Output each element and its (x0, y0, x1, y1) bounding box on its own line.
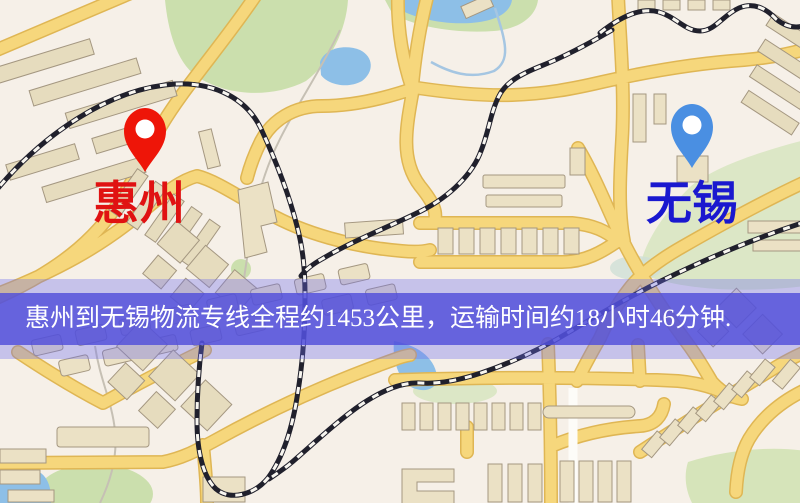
origin-city-label: 惠州 (93, 181, 185, 227)
origin-marker-pin[interactable] (122, 106, 168, 172)
info-banner: 惠州到无锡物流专线全程约1453公里，运输时间约18小时46分钟. (0, 293, 800, 345)
map-screenshot: 惠州 无锡 惠州到无锡物流专线全程约1453公里，运输时间约18小时46分钟. (0, 0, 800, 503)
origin-pin-shape (124, 108, 166, 172)
map-canvas[interactable] (0, 0, 800, 503)
destination-pin-shape (671, 104, 713, 168)
destination-pin-hole (683, 116, 702, 135)
info-banner-text: 惠州到无锡物流专线全程约1453公里，运输时间约18小时46分钟. (0, 293, 800, 345)
destination-city-label: 无锡 (646, 181, 738, 227)
destination-marker-pin[interactable] (669, 102, 715, 168)
origin-pin-hole (136, 120, 155, 139)
